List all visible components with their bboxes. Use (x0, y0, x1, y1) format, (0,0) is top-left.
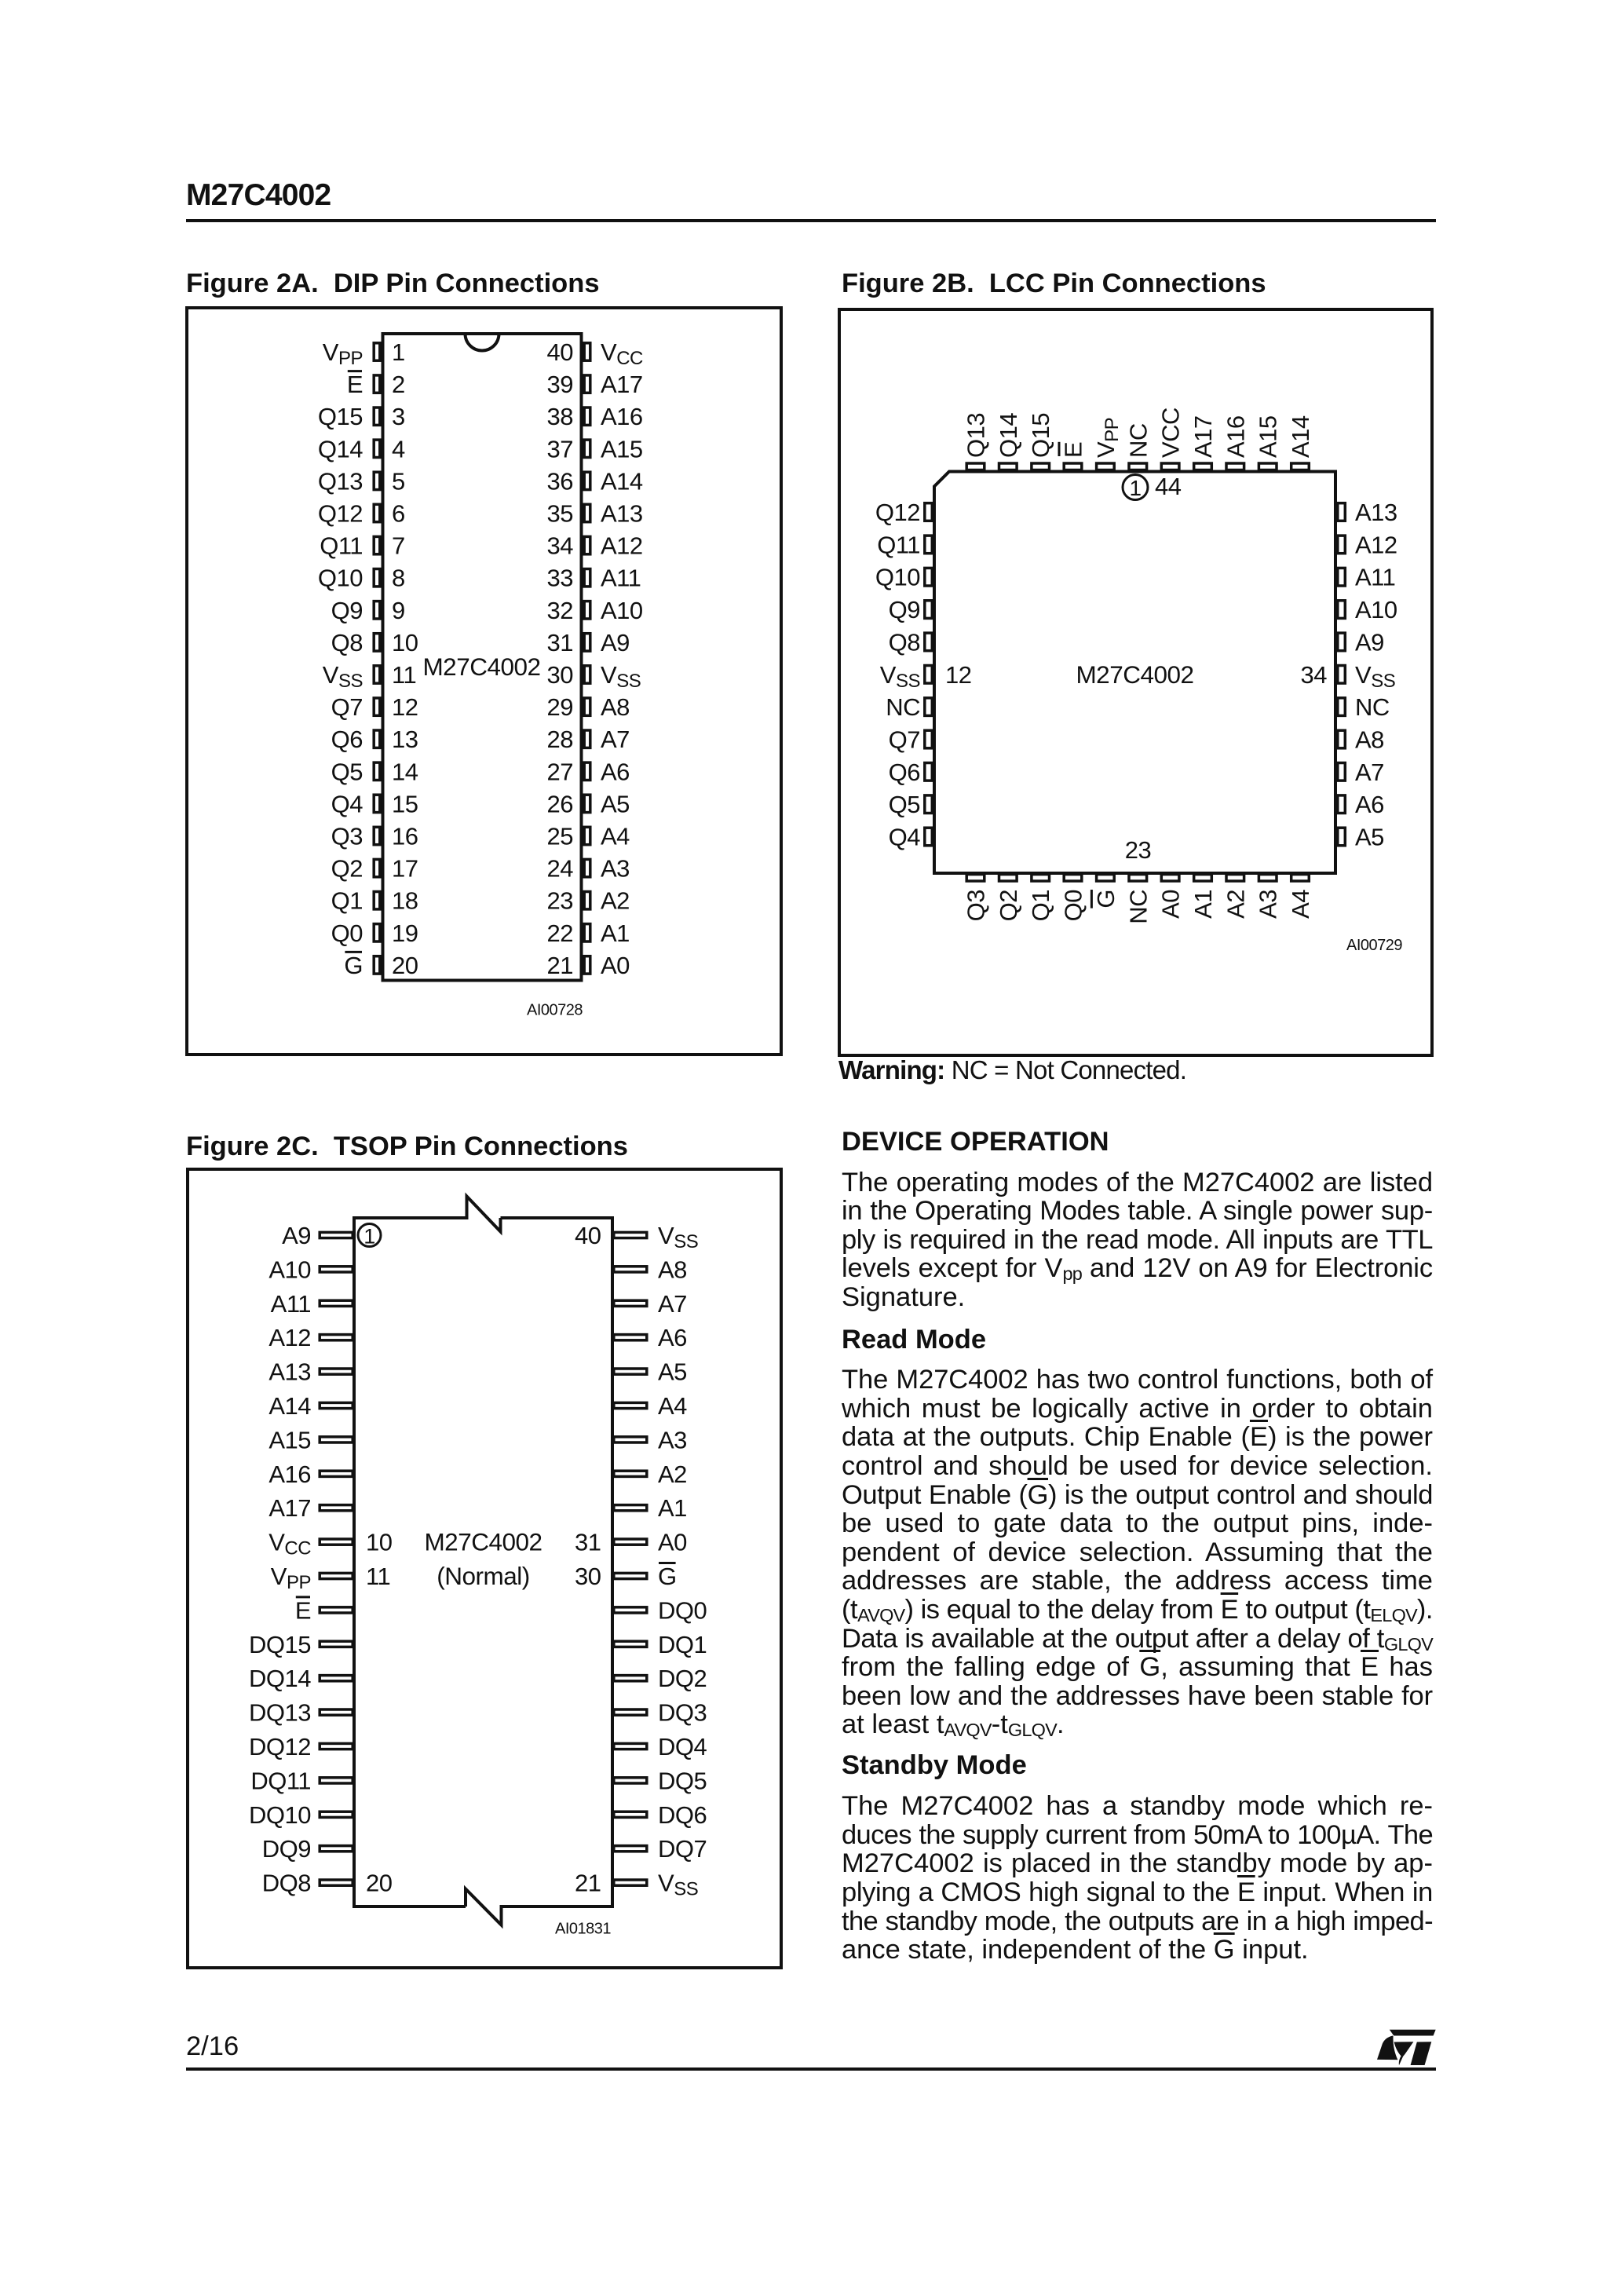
svg-text:30: 30 (575, 1563, 601, 1590)
svg-text:A12: A12 (269, 1324, 311, 1351)
svg-text:11: 11 (366, 1563, 390, 1590)
svg-text:19: 19 (392, 919, 418, 947)
svg-text:35: 35 (547, 500, 573, 528)
svg-text:37: 37 (547, 435, 573, 462)
svg-text:DQ0: DQ0 (658, 1596, 707, 1624)
svg-text:15: 15 (392, 790, 418, 817)
svg-text:VPP: VPP (271, 1563, 311, 1593)
svg-text:26: 26 (547, 790, 573, 817)
svg-text:1: 1 (1129, 476, 1141, 500)
svg-text:DQ6: DQ6 (658, 1801, 707, 1829)
svg-text:A10: A10 (1355, 596, 1397, 623)
svg-text:A11: A11 (271, 1290, 311, 1318)
svg-text:39: 39 (547, 371, 573, 398)
svg-text:Q0: Q0 (331, 919, 363, 947)
svg-text:A10: A10 (269, 1256, 311, 1283)
svg-text:Q11: Q11 (877, 531, 920, 558)
svg-text:21: 21 (575, 1870, 601, 1897)
svg-text:A5: A5 (1355, 824, 1384, 851)
svg-text:20: 20 (366, 1870, 393, 1897)
svg-text:Q6: Q6 (889, 759, 920, 786)
svg-text:DQ3: DQ3 (658, 1699, 707, 1727)
svg-text:A3: A3 (658, 1426, 687, 1453)
svg-text:A4: A4 (1287, 890, 1314, 919)
svg-text:NC: NC (1124, 423, 1152, 458)
svg-text:1: 1 (392, 338, 405, 366)
svg-text:Q7: Q7 (331, 693, 363, 721)
svg-text:17: 17 (392, 855, 418, 883)
svg-text:A11: A11 (601, 565, 641, 592)
svg-text:A2: A2 (1222, 890, 1249, 919)
svg-text:A5: A5 (658, 1358, 687, 1386)
svg-text:Q15: Q15 (318, 403, 363, 430)
svg-text:24: 24 (547, 855, 574, 883)
svg-text:11: 11 (392, 661, 416, 689)
svg-text:Q12: Q12 (875, 499, 920, 526)
svg-text:A17: A17 (601, 371, 643, 398)
svg-text:Q9: Q9 (331, 597, 363, 624)
svg-text:22: 22 (547, 919, 573, 947)
svg-text:NC: NC (1355, 693, 1390, 721)
svg-text:31: 31 (547, 629, 573, 656)
svg-text:Q13: Q13 (963, 413, 990, 458)
svg-text:34: 34 (1301, 661, 1328, 689)
svg-text:A2: A2 (658, 1461, 687, 1488)
svg-text:VCC: VCC (601, 338, 643, 369)
svg-text:7: 7 (392, 532, 405, 560)
svg-text:Q4: Q4 (331, 790, 363, 817)
svg-text:A8: A8 (658, 1256, 687, 1283)
svg-text:A17: A17 (1189, 415, 1217, 458)
svg-text:DQ4: DQ4 (658, 1733, 707, 1760)
svg-text:VSS: VSS (658, 1870, 698, 1900)
svg-text:A1: A1 (601, 919, 630, 947)
svg-text:A14: A14 (1287, 415, 1314, 458)
svg-text:Q6: Q6 (331, 726, 363, 753)
svg-text:M27C4002: M27C4002 (422, 653, 540, 681)
svg-text:E: E (1060, 442, 1087, 458)
svg-text:12: 12 (945, 661, 971, 689)
svg-text:12: 12 (392, 693, 418, 721)
svg-text:VSS: VSS (601, 661, 641, 692)
svg-text:23: 23 (1125, 836, 1151, 864)
svg-text:DQ8: DQ8 (262, 1870, 311, 1897)
svg-text:28: 28 (547, 726, 573, 753)
svg-text:Q1: Q1 (1027, 890, 1054, 921)
svg-text:AI01831: AI01831 (555, 1921, 611, 1938)
svg-text:NC: NC (886, 693, 920, 721)
svg-text:VSS: VSS (658, 1222, 698, 1252)
svg-text:Q5: Q5 (331, 758, 363, 785)
svg-text:23: 23 (547, 887, 573, 915)
svg-text:2: 2 (392, 371, 405, 398)
svg-text:A17: A17 (269, 1494, 311, 1522)
svg-text:A15: A15 (601, 435, 643, 462)
svg-text:A4: A4 (601, 823, 630, 850)
svg-text:33: 33 (547, 565, 573, 592)
svg-text:34: 34 (547, 532, 574, 560)
svg-text:VSS: VSS (1355, 661, 1395, 692)
svg-text:A9: A9 (1355, 628, 1384, 656)
svg-text:14: 14 (392, 758, 418, 785)
svg-text:A15: A15 (1255, 415, 1282, 458)
svg-text:38: 38 (547, 403, 573, 430)
svg-text:A3: A3 (1255, 890, 1282, 919)
svg-text:8: 8 (392, 565, 405, 592)
svg-text:DQ13: DQ13 (249, 1699, 311, 1727)
svg-text:A12: A12 (1355, 531, 1397, 558)
svg-text:VCC: VCC (269, 1529, 311, 1559)
svg-text:10: 10 (366, 1529, 393, 1556)
svg-text:Q10: Q10 (318, 565, 363, 592)
svg-text:Q1: Q1 (331, 887, 363, 915)
svg-text:DQ12: DQ12 (249, 1733, 311, 1760)
svg-text:A13: A13 (1355, 499, 1397, 526)
svg-text:40: 40 (547, 338, 574, 366)
svg-text:A5: A5 (601, 790, 630, 817)
svg-text:A16: A16 (601, 403, 643, 430)
svg-text:A14: A14 (269, 1392, 311, 1420)
svg-text:A6: A6 (601, 758, 630, 785)
svg-text:A0: A0 (1157, 890, 1185, 919)
svg-text:A1: A1 (1189, 890, 1217, 919)
svg-text:DQ15: DQ15 (249, 1631, 311, 1658)
svg-text:DQ2: DQ2 (658, 1665, 707, 1692)
svg-text:A1: A1 (658, 1494, 687, 1522)
svg-text:A9: A9 (601, 629, 630, 656)
svg-text:A0: A0 (601, 952, 630, 979)
svg-text:A13: A13 (601, 500, 643, 528)
svg-text:Q3: Q3 (331, 823, 363, 850)
svg-text:Q3: Q3 (963, 890, 990, 921)
svg-text:A12: A12 (601, 532, 643, 560)
svg-text:VSS: VSS (880, 661, 920, 692)
svg-text:A10: A10 (601, 597, 643, 624)
svg-text:A2: A2 (601, 887, 630, 915)
svg-text:40: 40 (575, 1222, 601, 1249)
svg-text:27: 27 (547, 758, 573, 785)
svg-text:A7: A7 (1355, 759, 1384, 786)
svg-text:32: 32 (547, 597, 573, 624)
svg-text:VPP: VPP (1092, 418, 1123, 458)
svg-text:DQ1: DQ1 (658, 1631, 707, 1658)
svg-text:A6: A6 (1355, 791, 1384, 818)
svg-text:A16: A16 (269, 1461, 311, 1488)
svg-text:A15: A15 (269, 1426, 311, 1453)
svg-text:G: G (658, 1563, 677, 1590)
svg-text:M27C4002: M27C4002 (1076, 660, 1193, 689)
svg-text:A14: A14 (601, 467, 643, 495)
svg-text:1: 1 (363, 1225, 375, 1249)
svg-text:AI00729: AI00729 (1346, 937, 1402, 954)
svg-text:(Normal): (Normal) (437, 1562, 530, 1590)
svg-text:Q14: Q14 (318, 435, 363, 462)
svg-text:Q9: Q9 (889, 596, 920, 623)
svg-text:M27C4002: M27C4002 (424, 1528, 542, 1556)
svg-text:5: 5 (392, 467, 405, 495)
svg-text:E: E (347, 371, 363, 398)
svg-text:10: 10 (392, 629, 418, 656)
svg-text:A0: A0 (658, 1529, 687, 1556)
svg-text:29: 29 (547, 693, 573, 721)
svg-text:6: 6 (392, 500, 405, 528)
svg-text:Q4: Q4 (889, 824, 921, 851)
svg-text:DQ11: DQ11 (250, 1767, 311, 1794)
svg-text:21: 21 (547, 952, 573, 979)
svg-text:3: 3 (392, 403, 405, 430)
svg-text:VSS: VSS (323, 661, 363, 692)
svg-text:A3: A3 (601, 855, 630, 883)
svg-text:A9: A9 (282, 1222, 311, 1249)
svg-text:Q13: Q13 (318, 467, 363, 495)
svg-text:A11: A11 (1355, 564, 1395, 591)
svg-text:A6: A6 (658, 1324, 687, 1351)
svg-text:25: 25 (547, 823, 573, 850)
svg-text:DQ10: DQ10 (249, 1801, 311, 1829)
svg-text:18: 18 (392, 887, 418, 915)
svg-text:4: 4 (392, 435, 405, 462)
svg-text:A4: A4 (658, 1392, 687, 1420)
svg-text:E: E (295, 1596, 311, 1624)
svg-text:36: 36 (547, 467, 573, 495)
svg-text:G: G (344, 952, 363, 979)
svg-text:Q5: Q5 (889, 791, 920, 818)
svg-text:Q8: Q8 (889, 628, 920, 656)
svg-text:VCC: VCC (1157, 408, 1185, 458)
svg-text:A8: A8 (1355, 726, 1384, 754)
svg-text:NC: NC (1124, 890, 1152, 924)
svg-text:Q15: Q15 (1027, 413, 1054, 458)
svg-text:Q8: Q8 (331, 629, 363, 656)
svg-text:13: 13 (392, 726, 418, 753)
svg-text:VPP: VPP (323, 338, 363, 369)
svg-text:Q12: Q12 (318, 500, 363, 528)
svg-text:DQ5: DQ5 (658, 1767, 707, 1794)
svg-text:Q2: Q2 (331, 855, 363, 883)
svg-text:Q0: Q0 (1060, 890, 1087, 922)
svg-text:A7: A7 (601, 726, 630, 753)
svg-text:A16: A16 (1222, 415, 1249, 458)
svg-text:A7: A7 (658, 1290, 687, 1318)
svg-text:Q2: Q2 (995, 890, 1022, 921)
svg-text:AI00728: AI00728 (527, 1002, 583, 1019)
svg-text:Q7: Q7 (889, 726, 920, 754)
svg-text:DQ7: DQ7 (658, 1835, 707, 1863)
svg-text:DQ9: DQ9 (262, 1835, 311, 1863)
svg-text:31: 31 (575, 1529, 601, 1556)
svg-text:DQ14: DQ14 (249, 1665, 311, 1692)
svg-text:9: 9 (392, 597, 405, 624)
svg-text:Q14: Q14 (995, 413, 1022, 458)
svg-text:16: 16 (392, 823, 418, 850)
svg-text:A8: A8 (601, 693, 630, 721)
svg-text:A13: A13 (269, 1358, 311, 1386)
svg-text:G: G (1092, 890, 1120, 909)
svg-text:30: 30 (547, 661, 574, 689)
svg-text:20: 20 (392, 952, 418, 979)
svg-text:Q10: Q10 (875, 564, 920, 591)
svg-text:Q11: Q11 (320, 532, 363, 560)
svg-text:44: 44 (1155, 473, 1182, 500)
